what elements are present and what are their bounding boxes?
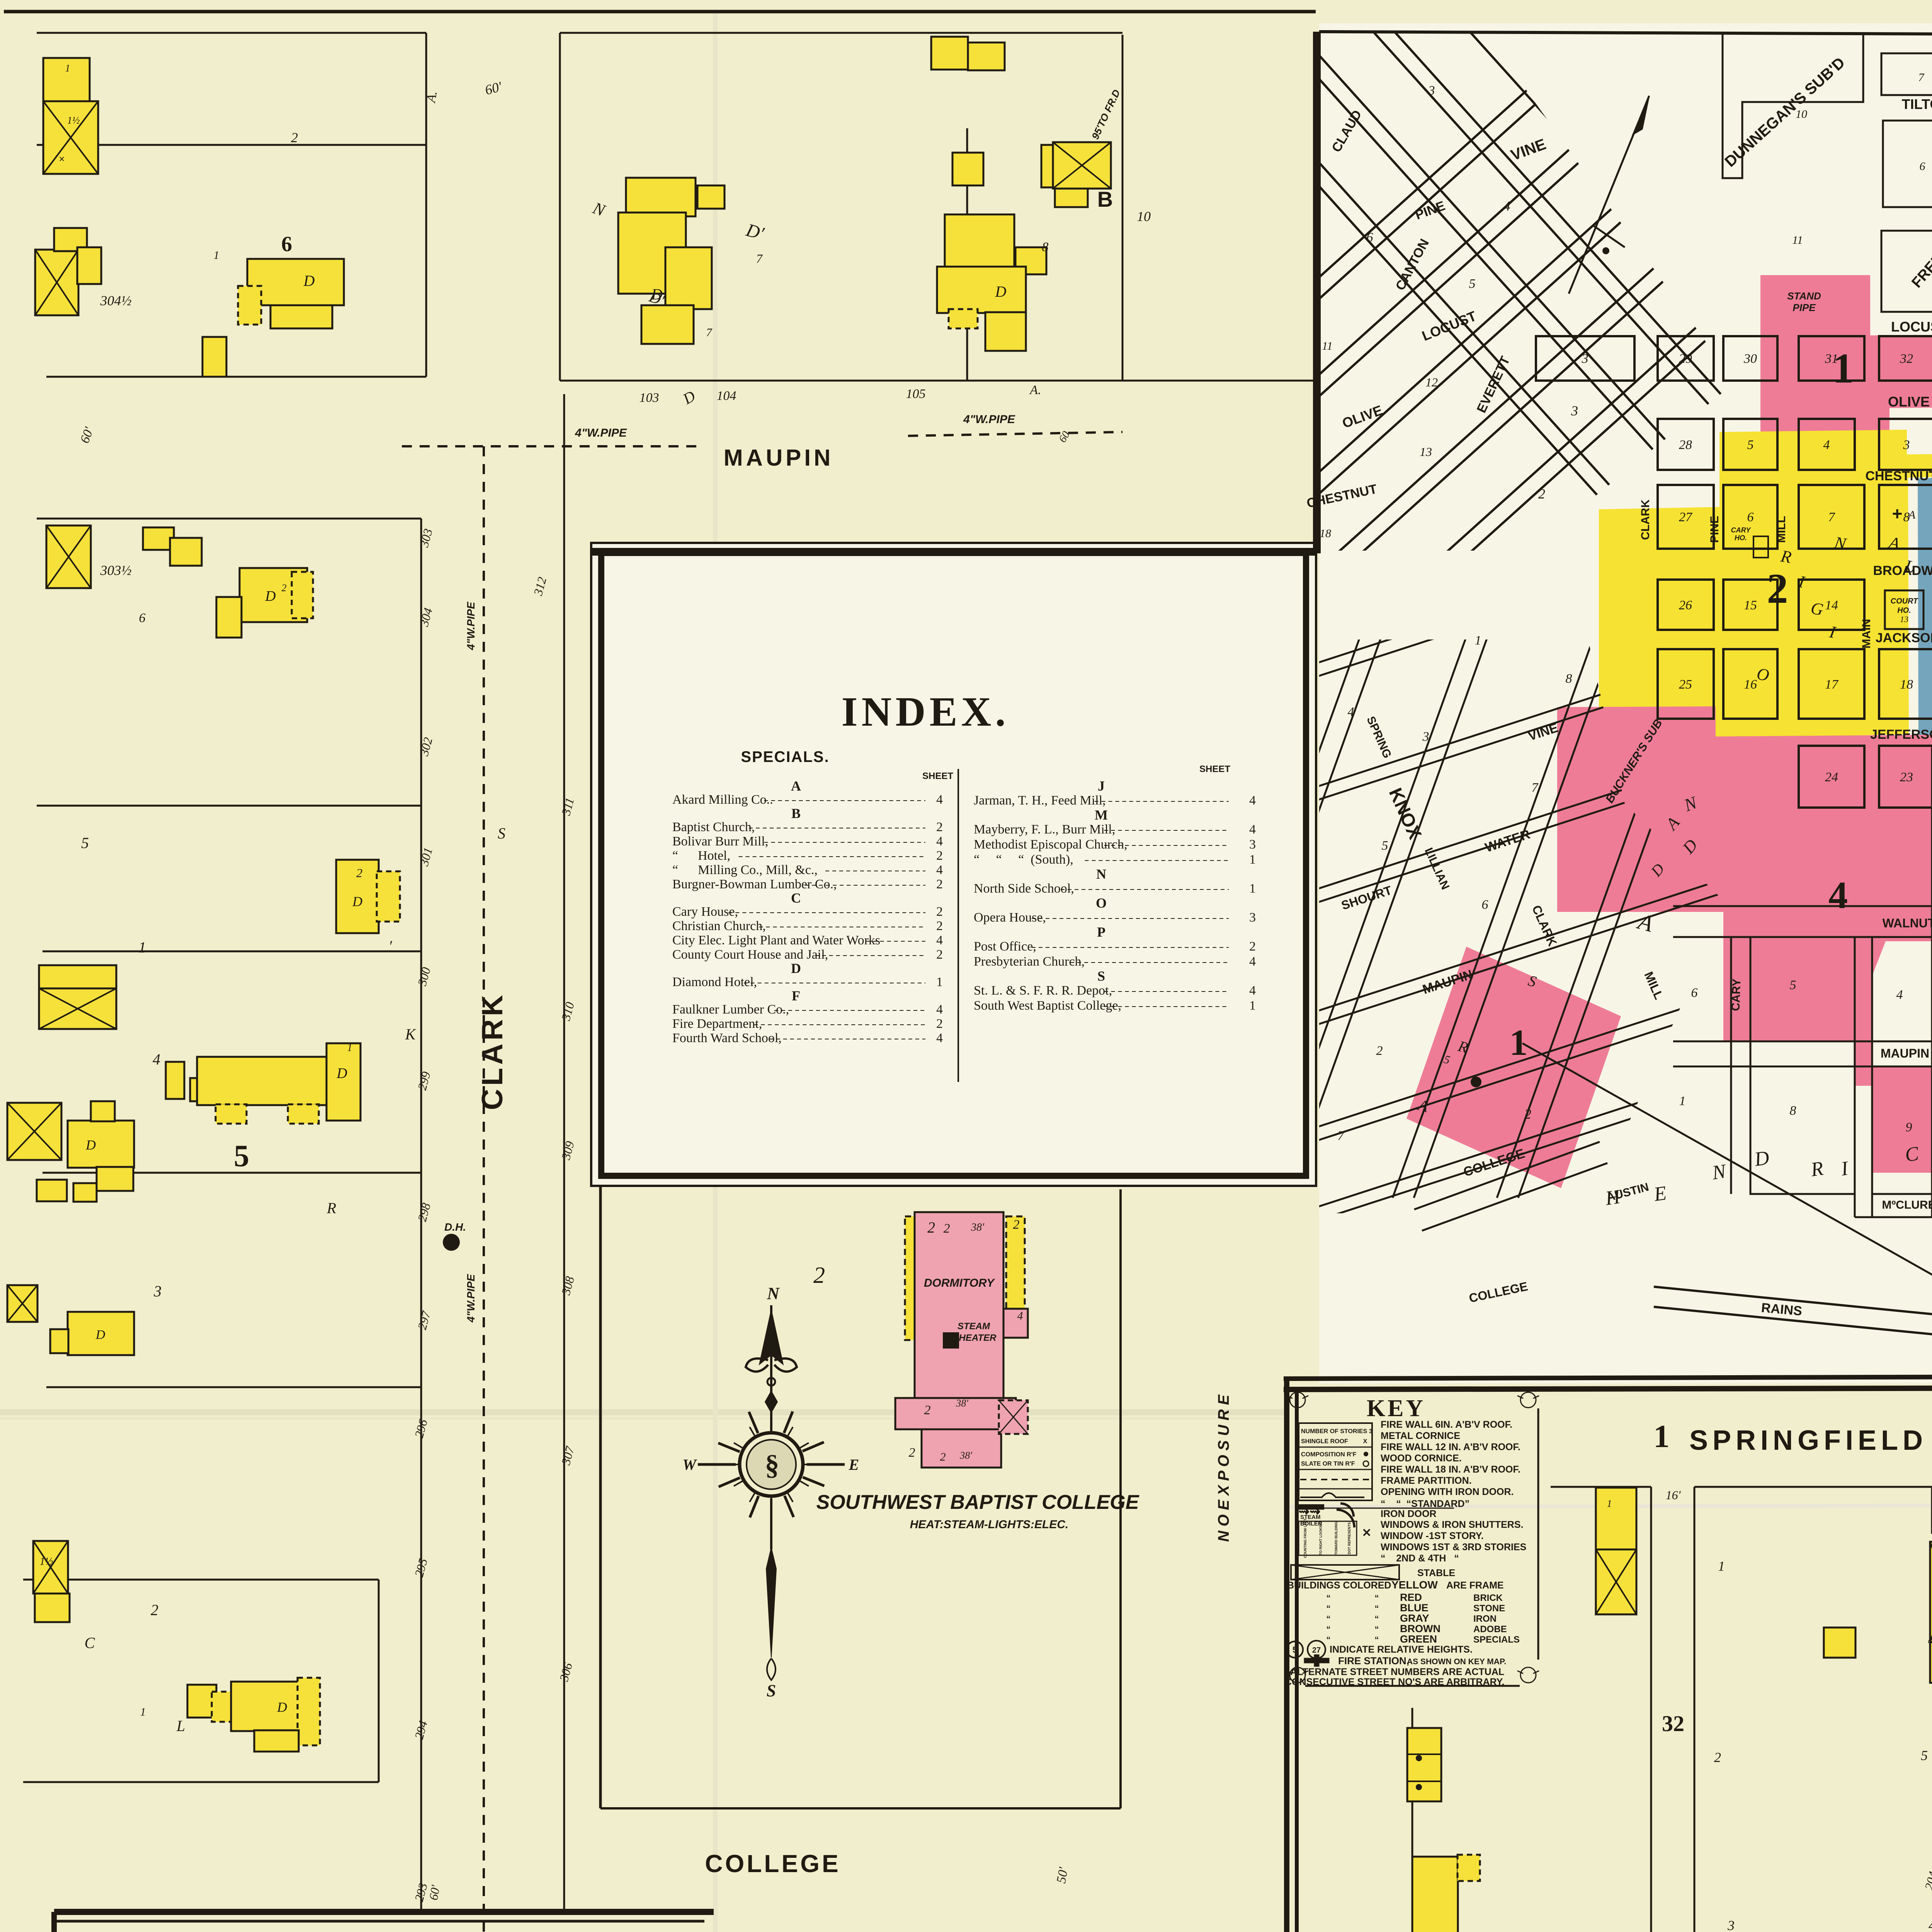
svg-text:St. L. & S. F. R. R. Depot,: St. L. & S. F. R. R. Depot, bbox=[974, 983, 1112, 998]
svg-text:7: 7 bbox=[1338, 1129, 1345, 1143]
svg-text:5: 5 bbox=[1469, 277, 1476, 291]
svg-text:10: 10 bbox=[1137, 209, 1151, 224]
svg-text:MAIN: MAIN bbox=[1860, 619, 1873, 649]
svg-text:TILTON: TILTON bbox=[1902, 96, 1932, 112]
svg-text:7: 7 bbox=[1828, 510, 1836, 524]
svg-text:2: 2 bbox=[924, 1403, 931, 1417]
svg-text:1: 1 bbox=[1475, 633, 1481, 648]
svg-text:38': 38' bbox=[959, 1450, 972, 1461]
svg-text:3: 3 bbox=[1249, 910, 1256, 925]
svg-text:SPECIALS.: SPECIALS. bbox=[741, 748, 829, 765]
svg-text:OLIVE: OLIVE bbox=[1888, 394, 1930, 410]
svg-text:2: 2 bbox=[936, 947, 943, 962]
svg-text:MAUPIN: MAUPIN bbox=[1881, 1046, 1929, 1060]
svg-text:3: 3 bbox=[1428, 83, 1435, 98]
svg-text:D: D bbox=[95, 1328, 105, 1342]
svg-text:24: 24 bbox=[1825, 770, 1838, 784]
svg-text:JEFFERSON: JEFFERSON bbox=[1870, 727, 1932, 742]
svg-text:A: A bbox=[1908, 509, 1916, 521]
svg-text:4: 4 bbox=[1249, 983, 1256, 998]
svg-text:DOT REPRESENTS: DOT REPRESENTS bbox=[1347, 1522, 1351, 1554]
svg-text:ADOBE: ADOBE bbox=[1473, 1624, 1507, 1634]
svg-text:4: 4 bbox=[936, 793, 943, 807]
svg-text:14: 14 bbox=[1825, 598, 1838, 612]
svg-text:17: 17 bbox=[1825, 677, 1839, 692]
svg-text:4: 4 bbox=[153, 1051, 160, 1068]
svg-text:City Elec. Light Plant and Wat: City Elec. Light Plant and Water Works bbox=[672, 933, 880, 947]
svg-text:S: S bbox=[498, 825, 505, 842]
svg-text:S: S bbox=[767, 1681, 776, 1700]
svg-text:50': 50' bbox=[1054, 1866, 1071, 1884]
svg-text:C: C bbox=[791, 890, 801, 906]
svg-text:1: 1 bbox=[1607, 1498, 1612, 1509]
svg-text:4: 4 bbox=[1017, 1310, 1023, 1322]
svg-text:HO.: HO. bbox=[1735, 534, 1747, 542]
svg-text:Akard Milling Co..: Akard Milling Co.. bbox=[672, 793, 773, 807]
svg-text:2: 2 bbox=[909, 1446, 915, 1460]
svg-text:5: 5 bbox=[1747, 438, 1754, 452]
svg-text:“ Hotel,: “ Hotel, bbox=[672, 849, 730, 863]
svg-text:28: 28 bbox=[1679, 438, 1692, 452]
svg-text:INDICATE RELATIVE HEIGHTS.: INDICATE RELATIVE HEIGHTS. bbox=[1330, 1644, 1473, 1655]
svg-text:29: 29 bbox=[1679, 352, 1692, 366]
svg-text:North Side School,: North Side School, bbox=[974, 881, 1074, 896]
svg-text:FIRE WALL 18 IN. A'B'V ROOF.: FIRE WALL 18 IN. A'B'V ROOF. bbox=[1381, 1464, 1520, 1475]
svg-text:“ 2ND & 4TH “: “ 2ND & 4TH “ bbox=[1381, 1553, 1459, 1564]
svg-text:Bolivar Burr Mill,: Bolivar Burr Mill, bbox=[672, 834, 768, 849]
svg-text:1: 1 bbox=[347, 1042, 352, 1053]
svg-text:O: O bbox=[1096, 895, 1107, 911]
svg-text:32: 32 bbox=[1900, 352, 1913, 366]
svg-text:STONE: STONE bbox=[1473, 1603, 1505, 1614]
svg-text:3: 3 bbox=[1422, 730, 1429, 744]
svg-text:10: 10 bbox=[1796, 108, 1807, 121]
svg-text:×: × bbox=[59, 153, 65, 165]
svg-text:16': 16' bbox=[1666, 1488, 1681, 1502]
svg-text:2: 2 bbox=[813, 1262, 825, 1288]
svg-text:✕: ✕ bbox=[1362, 1527, 1371, 1539]
svg-text:D: D bbox=[651, 286, 663, 303]
svg-text:WINDOW -1ST STORY.: WINDOW -1ST STORY. bbox=[1381, 1531, 1484, 1541]
svg-text:SLATE OR TIN R'F: SLATE OR TIN R'F bbox=[1301, 1461, 1355, 1467]
svg-text:4: 4 bbox=[936, 1002, 943, 1017]
svg-text:1: 1 bbox=[138, 939, 146, 956]
svg-text:3: 3 bbox=[1727, 1918, 1735, 1932]
svg-text:13: 13 bbox=[1900, 614, 1908, 624]
svg-text:Christian Church,: Christian Church, bbox=[672, 919, 766, 933]
svg-text:7: 7 bbox=[1918, 71, 1925, 84]
svg-text:8: 8 bbox=[1566, 672, 1572, 686]
svg-text:WINDOWS 1ST & 3RD STORIES: WINDOWS 1ST & 3RD STORIES bbox=[1381, 1542, 1526, 1553]
svg-text:4: 4 bbox=[1249, 954, 1256, 969]
svg-text:2: 2 bbox=[356, 866, 362, 880]
svg-text:3: 3 bbox=[1903, 438, 1910, 452]
svg-text:CONSECUTIVE STREET NO'S ARE AR: CONSECUTIVE STREET NO'S ARE ARBITRARY. bbox=[1285, 1677, 1505, 1687]
svg-text:FIRE WALL 6IN. A'B'V ROOF.: FIRE WALL 6IN. A'B'V ROOF. bbox=[1381, 1419, 1512, 1430]
svg-text:Presbyterian Church,: Presbyterian Church, bbox=[974, 954, 1085, 969]
svg-text:4: 4 bbox=[1823, 438, 1830, 452]
svg-text:YELLOW: YELLOW bbox=[1391, 1579, 1438, 1591]
svg-text:“: “ bbox=[1375, 1635, 1379, 1645]
svg-text:PIPE: PIPE bbox=[1793, 302, 1816, 313]
svg-text:CHESTNUT: CHESTNUT bbox=[1865, 469, 1932, 483]
svg-text:D: D bbox=[1753, 1147, 1770, 1171]
svg-text:+: + bbox=[1892, 503, 1903, 524]
svg-text:2: 2 bbox=[944, 1221, 950, 1236]
svg-text:1: 1 bbox=[1653, 1418, 1670, 1454]
svg-text:4: 4 bbox=[936, 933, 943, 947]
svg-text:E: E bbox=[849, 1456, 859, 1473]
svg-text:38': 38' bbox=[956, 1398, 968, 1409]
svg-text:County Court House and Jail,: County Court House and Jail, bbox=[672, 947, 828, 962]
svg-text:X: X bbox=[1363, 1438, 1367, 1445]
svg-text:CLARK: CLARK bbox=[1639, 499, 1652, 540]
svg-text:2: 2 bbox=[936, 905, 943, 919]
svg-text:8: 8 bbox=[1790, 1104, 1796, 1118]
svg-text:4: 4 bbox=[1249, 793, 1256, 808]
svg-text:Mayberry, F. L., Burr Mill,: Mayberry, F. L., Burr Mill, bbox=[974, 822, 1115, 837]
svg-text:1: 1 bbox=[1509, 1022, 1528, 1063]
svg-text:R: R bbox=[327, 1199, 336, 1217]
svg-text:“: “ bbox=[1327, 1635, 1331, 1645]
svg-text:3: 3 bbox=[1249, 837, 1256, 852]
svg-text:L: L bbox=[176, 1717, 185, 1735]
svg-text:STEAM: STEAM bbox=[957, 1321, 990, 1332]
svg-text:Fourth Ward School,: Fourth Ward School, bbox=[672, 1031, 782, 1045]
svg-text:“: “ bbox=[1375, 1593, 1379, 1603]
svg-text:2: 2 bbox=[1376, 1044, 1383, 1058]
svg-text:SHEET: SHEET bbox=[922, 771, 953, 781]
svg-text:4: 4 bbox=[1896, 988, 1903, 1002]
svg-text:CLARK: CLARK bbox=[476, 992, 509, 1110]
svg-text:1: 1 bbox=[214, 249, 219, 262]
svg-text:2: 2 bbox=[927, 1219, 935, 1236]
svg-text:IRON: IRON bbox=[1473, 1614, 1497, 1624]
svg-text:N: N bbox=[767, 1284, 780, 1303]
svg-text:1: 1 bbox=[65, 63, 70, 74]
svg-text:2: 2 bbox=[1538, 486, 1545, 502]
svg-text:104: 104 bbox=[717, 389, 736, 403]
svg-text:HO.: HO. bbox=[1897, 606, 1911, 615]
svg-text:C: C bbox=[85, 1634, 95, 1651]
svg-text:STAND: STAND bbox=[1787, 290, 1821, 302]
svg-text:Cary House,: Cary House, bbox=[672, 905, 738, 919]
svg-text:27: 27 bbox=[1679, 510, 1693, 524]
svg-text:2: 2 bbox=[1249, 939, 1256, 954]
svg-text:§: § bbox=[765, 1449, 779, 1481]
svg-text:“: “ bbox=[1327, 1614, 1331, 1624]
svg-text:“: “ bbox=[1327, 1604, 1331, 1613]
svg-text:OPENING WITH IRON DOOR.: OPENING WITH IRON DOOR. bbox=[1381, 1486, 1514, 1497]
svg-text:32: 32 bbox=[1662, 1711, 1684, 1736]
svg-text:N: N bbox=[1096, 866, 1106, 882]
svg-text:304½: 304½ bbox=[100, 293, 132, 308]
svg-text:4: 4 bbox=[936, 1031, 943, 1045]
svg-text:COLLEGE: COLLEGE bbox=[705, 1850, 840, 1878]
svg-text:2: 2 bbox=[936, 919, 943, 933]
svg-text:DORMITORY: DORMITORY bbox=[924, 1277, 995, 1289]
svg-text:2: 2 bbox=[936, 1017, 943, 1031]
svg-text:D: D bbox=[265, 588, 276, 604]
svg-text:8: 8 bbox=[1042, 240, 1049, 254]
svg-text:25: 25 bbox=[1679, 677, 1692, 692]
svg-text:Burgner-Bowman Lumber Co.,: Burgner-Bowman Lumber Co., bbox=[672, 877, 837, 891]
svg-text:ALTERNATE STREET NUMBERS ARE A: ALTERNATE STREET NUMBERS ARE ACTUAL bbox=[1290, 1667, 1504, 1677]
svg-text:INDEX.: INDEX. bbox=[841, 689, 1009, 735]
svg-text:60': 60' bbox=[426, 1884, 442, 1901]
svg-text:303½: 303½ bbox=[100, 563, 132, 578]
svg-text:GRAY: GRAY bbox=[1400, 1612, 1429, 1624]
svg-text:Methodist Episcopal Church,: Methodist Episcopal Church, bbox=[974, 837, 1128, 852]
svg-text:2: 2 bbox=[282, 582, 287, 594]
svg-text:2: 2 bbox=[1013, 1218, 1020, 1232]
svg-text:27: 27 bbox=[1312, 1646, 1321, 1655]
svg-text:JACKSON: JACKSON bbox=[1876, 631, 1932, 645]
svg-text:2: 2 bbox=[936, 877, 943, 891]
svg-text:COMPOSITION R'F: COMPOSITION R'F bbox=[1301, 1451, 1357, 1458]
svg-text:COUNTING FROM LEFT: COUNTING FROM LEFT bbox=[1303, 1519, 1307, 1558]
svg-text:MILL: MILL bbox=[1775, 516, 1788, 543]
svg-text:P: P bbox=[1097, 924, 1105, 940]
svg-text:Faulkner Lumber Co.,: Faulkner Lumber Co., bbox=[672, 1002, 789, 1017]
svg-text:MAUPIN: MAUPIN bbox=[724, 445, 834, 471]
svg-text:2: 2 bbox=[936, 849, 943, 863]
svg-text:D: D bbox=[995, 283, 1007, 300]
svg-text:WALNUT: WALNUT bbox=[1883, 916, 1932, 930]
svg-text:6: 6 bbox=[1482, 898, 1488, 912]
svg-text:D.H.: D.H. bbox=[444, 1221, 466, 1233]
svg-text:4: 4 bbox=[1249, 822, 1256, 837]
svg-text:30: 30 bbox=[1743, 352, 1757, 366]
svg-text:105: 105 bbox=[906, 387, 926, 401]
svg-text:⇝⇝: ⇝⇝ bbox=[1299, 1504, 1321, 1519]
svg-text:FIRE STATION,: FIRE STATION, bbox=[1338, 1655, 1409, 1667]
svg-text:Baptist Church,: Baptist Church, bbox=[672, 820, 755, 834]
svg-text:SHEET: SHEET bbox=[1199, 764, 1230, 774]
svg-text:38': 38' bbox=[971, 1221, 985, 1233]
svg-text:“ Milling Co., Mill, &c.,: “ Milling Co., Mill, &c., bbox=[672, 863, 818, 877]
svg-text:CARY: CARY bbox=[1731, 526, 1752, 534]
svg-text:D: D bbox=[303, 272, 315, 289]
svg-text:2: 2 bbox=[940, 1451, 946, 1463]
svg-text:4"W.PIPE: 4"W.PIPE bbox=[465, 1274, 477, 1323]
svg-text:2: 2 bbox=[151, 1601, 158, 1619]
svg-text:W: W bbox=[682, 1456, 697, 1473]
svg-text:“ “ “STANDARD”: “ “ “STANDARD” bbox=[1381, 1498, 1469, 1509]
svg-text:18: 18 bbox=[1320, 527, 1331, 540]
svg-text:South West Baptist College,: South West Baptist College, bbox=[974, 998, 1121, 1013]
svg-text:LOCUST: LOCUST bbox=[1891, 319, 1932, 335]
svg-text:A: A bbox=[791, 778, 801, 794]
svg-text:WOOD CORNICE.: WOOD CORNICE. bbox=[1381, 1453, 1462, 1464]
svg-text:B: B bbox=[791, 806, 801, 821]
svg-text:Post Office,: Post Office, bbox=[974, 939, 1036, 954]
svg-text:METAL CORNICE: METAL CORNICE bbox=[1381, 1430, 1460, 1441]
svg-text:1: 1 bbox=[1833, 345, 1854, 392]
svg-text:“: “ bbox=[1327, 1593, 1331, 1603]
svg-text:5: 5 bbox=[1293, 1645, 1297, 1655]
svg-text:9: 9 bbox=[1906, 1120, 1912, 1134]
svg-text:N O E X P O S U R E: N O E X P O S U R E bbox=[1215, 1394, 1232, 1542]
svg-text:3: 3 bbox=[1582, 352, 1588, 366]
svg-text:D: D bbox=[791, 961, 801, 976]
svg-text:23: 23 bbox=[1900, 770, 1913, 784]
svg-text:12: 12 bbox=[1425, 375, 1438, 389]
svg-text:M: M bbox=[1095, 807, 1108, 823]
svg-text:4"W.PIPE: 4"W.PIPE bbox=[963, 413, 1015, 426]
svg-text:AS SHOWN ON KEY MAP.: AS SHOWN ON KEY MAP. bbox=[1407, 1657, 1506, 1666]
svg-text:1: 1 bbox=[140, 1706, 146, 1718]
svg-text:4: 4 bbox=[1929, 1918, 1932, 1932]
svg-text:BROWN: BROWN bbox=[1400, 1623, 1440, 1634]
svg-text:11: 11 bbox=[1322, 340, 1333, 352]
svg-text:“: “ bbox=[1375, 1604, 1379, 1613]
svg-text:3: 3 bbox=[153, 1282, 162, 1300]
svg-text:103: 103 bbox=[639, 391, 659, 405]
svg-text:2: 2 bbox=[936, 820, 943, 834]
svg-text:4: 4 bbox=[1503, 198, 1510, 214]
svg-text:1½: 1½ bbox=[40, 1556, 53, 1568]
svg-text:D: D bbox=[277, 1699, 287, 1715]
svg-text:15: 15 bbox=[1744, 598, 1757, 612]
svg-text:A.: A. bbox=[1029, 383, 1041, 397]
svg-text:“: “ bbox=[1375, 1614, 1379, 1624]
svg-text:1: 1 bbox=[1249, 852, 1256, 867]
svg-text:11: 11 bbox=[1792, 234, 1803, 247]
svg-text:6: 6 bbox=[1920, 160, 1925, 173]
svg-text:26: 26 bbox=[1679, 598, 1692, 612]
svg-text:FIRE WALL 12 IN. A'B'V ROOF.: FIRE WALL 12 IN. A'B'V ROOF. bbox=[1381, 1442, 1520, 1452]
svg-text:4"W.PIPE: 4"W.PIPE bbox=[575, 427, 627, 439]
svg-text:“: “ bbox=[1327, 1624, 1331, 1634]
svg-text:SHINGLE ROOF: SHINGLE ROOF bbox=[1301, 1438, 1348, 1445]
svg-text:SPRINGFIELD: SPRINGFIELD bbox=[1689, 1425, 1927, 1456]
svg-text:Diamond Hotel,: Diamond Hotel, bbox=[672, 975, 757, 989]
svg-text:5: 5 bbox=[234, 1139, 249, 1173]
svg-text:4: 4 bbox=[936, 834, 943, 849]
svg-text:6: 6 bbox=[1747, 510, 1754, 524]
svg-text:7: 7 bbox=[706, 326, 713, 339]
svg-text:COURT: COURT bbox=[1891, 597, 1919, 605]
svg-text:3: 3 bbox=[1571, 403, 1578, 418]
svg-text:1½: 1½ bbox=[67, 115, 80, 126]
svg-text:IRON DOOR: IRON DOOR bbox=[1381, 1509, 1436, 1519]
svg-text:K: K bbox=[405, 1026, 417, 1043]
svg-text:4: 4 bbox=[1828, 874, 1848, 917]
svg-text:WINDOWS & IRON SHUTTERS.: WINDOWS & IRON SHUTTERS. bbox=[1381, 1519, 1523, 1530]
svg-text:SOUTHWEST BAPTIST COLLEGE: SOUTHWEST BAPTIST COLLEGE bbox=[816, 1491, 1139, 1514]
svg-text:NUMBER OF STORIES 3: NUMBER OF STORIES 3 bbox=[1301, 1428, 1372, 1435]
svg-text:D: D bbox=[352, 894, 362, 909]
svg-text:RED: RED bbox=[1400, 1592, 1422, 1603]
svg-text:′: ′ bbox=[389, 937, 393, 955]
svg-text:1: 1 bbox=[936, 975, 943, 989]
svg-text:2: 2 bbox=[1524, 1106, 1531, 1122]
svg-text:D: D bbox=[336, 1065, 347, 1082]
svg-text:Opera House,: Opera House, bbox=[974, 910, 1046, 925]
svg-text:F: F bbox=[792, 988, 800, 1003]
svg-text:18: 18 bbox=[1900, 677, 1913, 692]
svg-text:TOWARD BUILDING: TOWARD BUILDING bbox=[1334, 1522, 1338, 1555]
svg-text:13: 13 bbox=[1420, 445, 1432, 459]
svg-text:4: 4 bbox=[936, 863, 943, 877]
svg-text:MºCLURE: MºCLURE bbox=[1882, 1199, 1932, 1211]
svg-text:5: 5 bbox=[1921, 1748, 1928, 1763]
svg-text:4"W.PIPE: 4"W.PIPE bbox=[465, 601, 477, 650]
svg-text:7: 7 bbox=[756, 252, 763, 265]
svg-text:B: B bbox=[1097, 187, 1113, 211]
svg-text:6: 6 bbox=[1367, 230, 1373, 245]
svg-text:J: J bbox=[1098, 778, 1105, 794]
svg-text:S: S bbox=[1097, 968, 1105, 984]
svg-text:7: 7 bbox=[1532, 781, 1539, 795]
svg-text:5: 5 bbox=[81, 834, 89, 852]
svg-text:HEATER: HEATER bbox=[959, 1333, 997, 1343]
svg-text:2: 2 bbox=[1767, 565, 1788, 612]
svg-text:ARE FRAME: ARE FRAME bbox=[1446, 1580, 1504, 1591]
svg-text:CARY: CARY bbox=[1730, 978, 1743, 1011]
svg-text:HEAT:STEAM-LIGHTS:ELEC.: HEAT:STEAM-LIGHTS:ELEC. bbox=[910, 1518, 1069, 1531]
svg-text:6: 6 bbox=[281, 232, 292, 256]
svg-text:Jarman, T. H., Feed Mill,: Jarman, T. H., Feed Mill, bbox=[974, 793, 1106, 808]
svg-text:4: 4 bbox=[1348, 705, 1354, 719]
svg-text:FRAME PARTITION.: FRAME PARTITION. bbox=[1381, 1475, 1472, 1486]
svg-text:BUILDINGS COLORED: BUILDINGS COLORED bbox=[1287, 1580, 1391, 1591]
svg-text:6: 6 bbox=[139, 611, 146, 625]
svg-text:Fire Department,: Fire Department, bbox=[672, 1017, 762, 1031]
svg-text:BROADWAY: BROADWAY bbox=[1873, 563, 1932, 578]
svg-text:6: 6 bbox=[1691, 986, 1698, 1000]
svg-text:16: 16 bbox=[1744, 677, 1757, 692]
svg-text:KEY: KEY bbox=[1367, 1395, 1425, 1422]
svg-text:BRICK: BRICK bbox=[1473, 1593, 1503, 1603]
svg-text:1: 1 bbox=[1679, 1094, 1686, 1108]
svg-text:1: 1 bbox=[1249, 998, 1256, 1013]
svg-text:GREEN: GREEN bbox=[1400, 1633, 1437, 1645]
svg-text:5: 5 bbox=[1790, 978, 1796, 992]
svg-text:2: 2 bbox=[1714, 1750, 1721, 1765]
svg-text:“: “ bbox=[1375, 1624, 1379, 1634]
svg-text:BLUE: BLUE bbox=[1400, 1602, 1429, 1614]
svg-text:2: 2 bbox=[291, 130, 298, 145]
svg-text:STABLE: STABLE bbox=[1417, 1568, 1455, 1578]
svg-text:“ “ “ (South),: “ “ “ (South), bbox=[974, 852, 1073, 867]
svg-text:1: 1 bbox=[1249, 881, 1256, 896]
svg-text:5: 5 bbox=[1382, 838, 1388, 853]
svg-text:TO RIGHT LOOKING: TO RIGHT LOOKING bbox=[1319, 1521, 1323, 1555]
svg-text:SPECIALS: SPECIALS bbox=[1473, 1634, 1520, 1645]
svg-text:PINE: PINE bbox=[1708, 516, 1721, 543]
svg-text:1: 1 bbox=[1718, 1558, 1725, 1574]
svg-text:D: D bbox=[85, 1137, 96, 1153]
